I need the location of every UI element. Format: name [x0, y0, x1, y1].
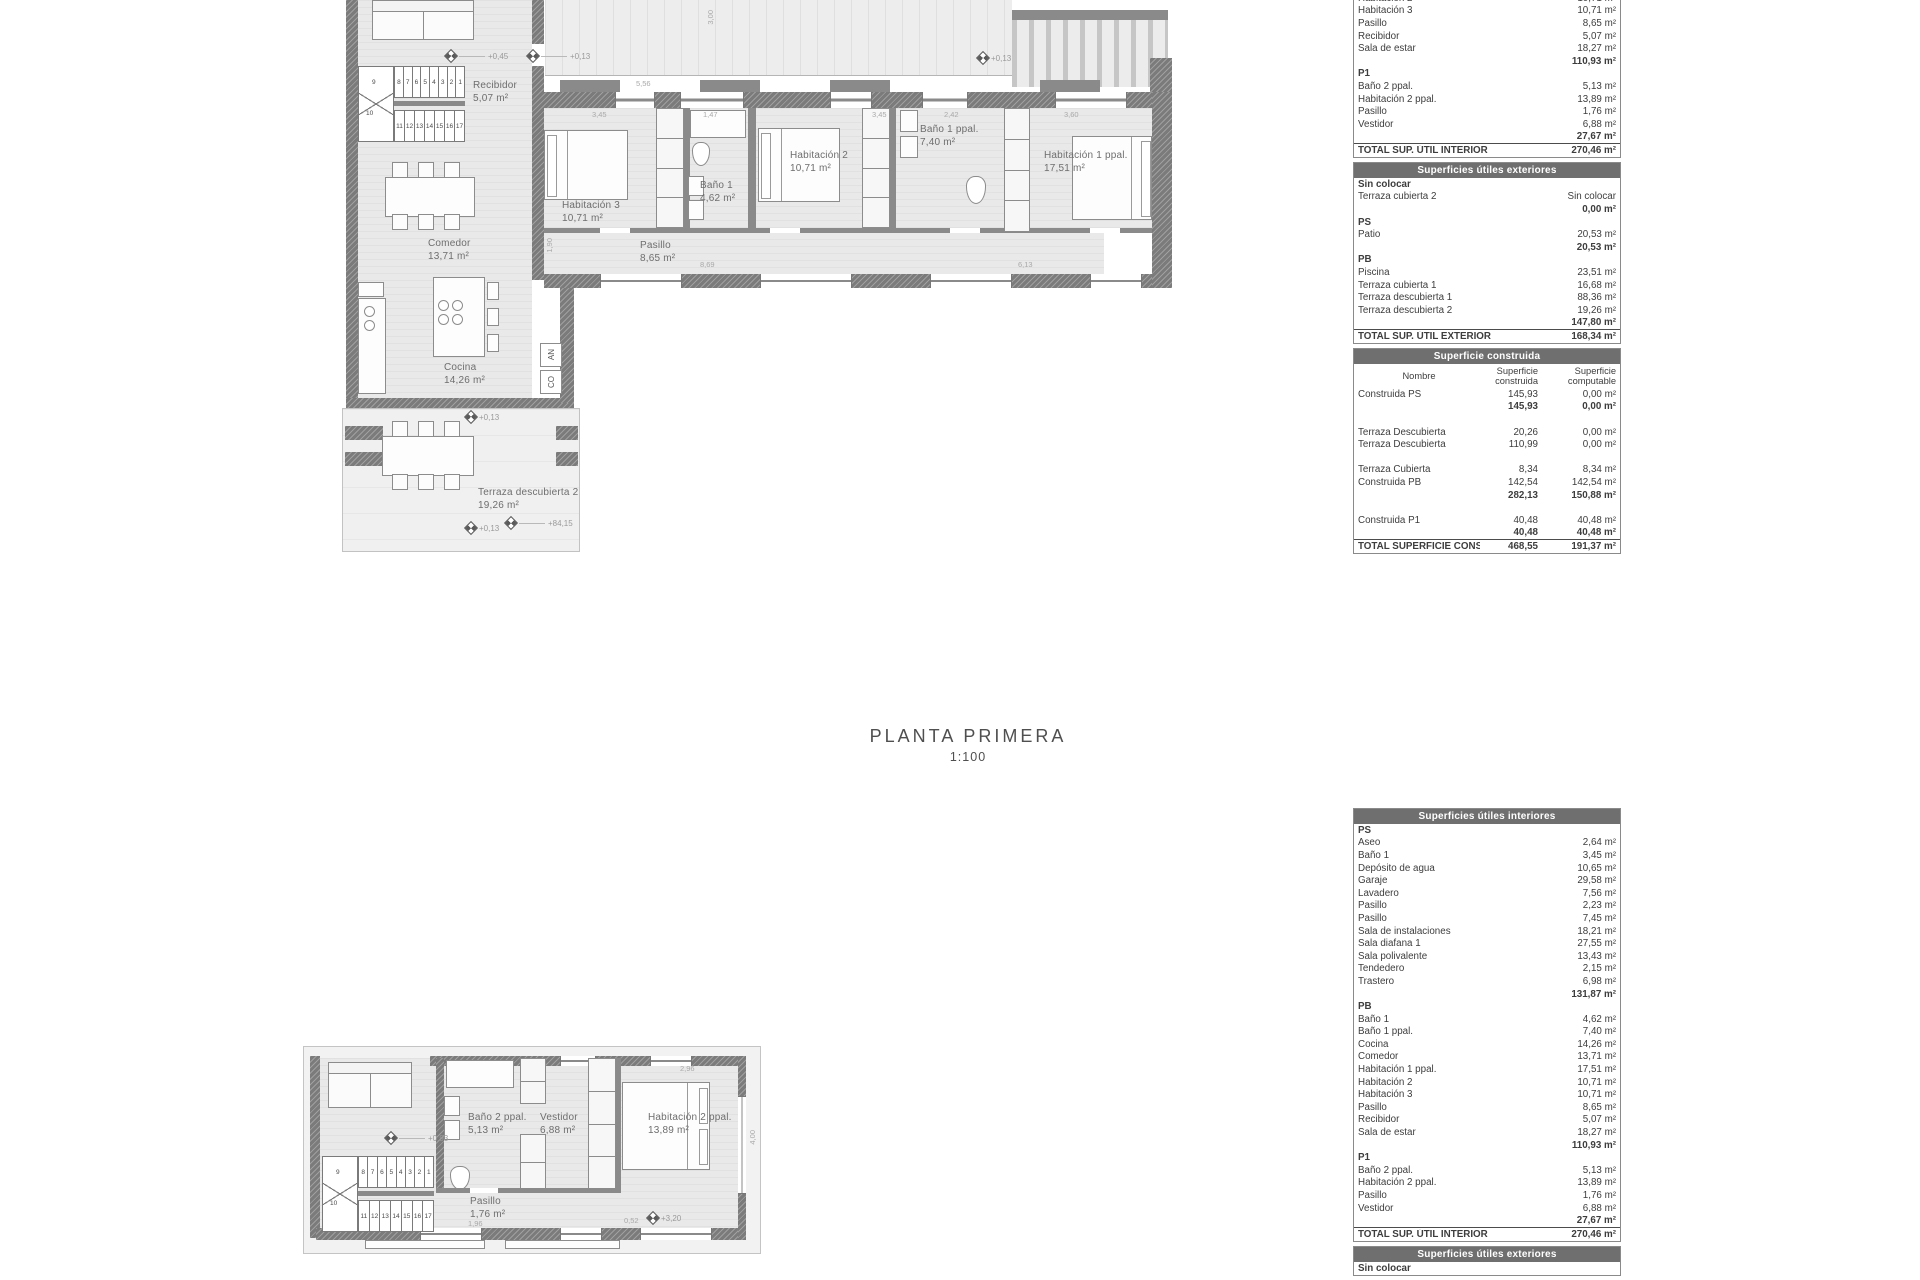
table-row: 282,13150,88 m²	[1354, 489, 1620, 502]
table-row: Habitación 2 ppal.13,89 m²	[1354, 93, 1620, 106]
table-cell: 27,67 m²	[1577, 1215, 1616, 1226]
dimension: 6,13	[1018, 260, 1033, 269]
table-cell: 5,13 m²	[1583, 81, 1616, 92]
table-row: P1	[1354, 1151, 1620, 1164]
stair-step-number: 17	[423, 1201, 433, 1231]
table-cell: 40,48	[1480, 515, 1538, 526]
wardrobe	[862, 108, 890, 228]
stair-step-number: 7	[368, 1157, 377, 1187]
table-cell: 10,65 m²	[1577, 863, 1616, 874]
table-cell: 5,13 m²	[1583, 1165, 1616, 1176]
table-cell: 131,87 m²	[1571, 989, 1616, 1000]
wall	[1150, 58, 1172, 92]
table-cell: 8,65 m²	[1583, 1102, 1616, 1113]
bed	[1072, 136, 1152, 220]
level-marker: +0,13	[466, 412, 499, 422]
table-superficies-utiles-exteriores-bottom: Superficies útiles exterioresSin colocar	[1353, 1246, 1621, 1276]
table-cell: 20,26	[1480, 427, 1538, 438]
table-cell: Sin colocar	[1568, 191, 1616, 202]
sofa-back	[329, 1063, 411, 1074]
window-sill	[830, 80, 890, 92]
table-row: P1	[1354, 68, 1620, 81]
table-cell: 13,89 m²	[1577, 94, 1616, 105]
wall	[890, 108, 896, 228]
table-row: Baño 14,62 m²	[1354, 1013, 1620, 1026]
wardrobe	[656, 108, 684, 228]
stair-step-number: 9	[336, 1169, 340, 1176]
dimension: 2,96	[680, 1064, 695, 1073]
window	[760, 274, 852, 288]
chair	[444, 421, 460, 437]
bed-sheet-line	[1131, 137, 1132, 219]
stair-landing	[358, 66, 394, 142]
table-row: Depósito de agua10,65 m²	[1354, 862, 1620, 875]
table-row: TOTAL SUP. ÚTIL EXTERIOR168,34 m²	[1354, 329, 1620, 343]
table-cell: Habitación 2 ppal.	[1358, 94, 1577, 105]
wall	[1152, 92, 1172, 288]
sink-bowl	[364, 320, 375, 331]
table-cell: Trastero	[1358, 976, 1583, 987]
table-row: 0,00 m²	[1354, 203, 1620, 216]
table-cell: Terraza descubierta 2	[1358, 305, 1577, 316]
table-cell: 29,58 m²	[1577, 875, 1616, 886]
table-row: Terraza Descubierta20,260,00 m²	[1354, 426, 1620, 439]
table-row: Recibidor5,07 m²	[1354, 30, 1620, 43]
room-label-hab2ppal: Habitación 2 ppal.13,89 m²	[648, 1112, 732, 1137]
kitchen-appliance	[358, 282, 384, 297]
bed-sheet-line	[781, 129, 782, 201]
table-cell: Sala de estar	[1358, 1127, 1577, 1138]
level-marker: +0,93	[386, 1133, 448, 1143]
table-cell: 10,71 m²	[1577, 0, 1616, 4]
wardrobe	[588, 1058, 616, 1190]
table-row: Terraza Cubierta8,348,34 m²	[1354, 464, 1620, 477]
table-cell: 0,00 m²	[1538, 427, 1616, 438]
table-cell: 110,99	[1480, 439, 1538, 450]
table-header: Superficies útiles exteriores	[1354, 163, 1620, 178]
bed	[544, 130, 628, 200]
shower	[690, 110, 746, 138]
room-label-terraza2: Terraza descubierta 219,26 m²	[478, 487, 578, 512]
table-row: Cocina14,26 m²	[1354, 1038, 1620, 1051]
outdoor-table	[382, 436, 474, 476]
level-marker: +0,45	[446, 51, 508, 61]
benchmark-icon	[464, 521, 478, 535]
table-cell: PB	[1358, 254, 1616, 265]
table-cell: Habitación 2	[1358, 1077, 1577, 1088]
table-row: Habitación 310,71 m²	[1354, 1088, 1620, 1101]
table-row: TOTAL SUP. ÚTIL INTERIOR270,46 m²	[1354, 143, 1620, 157]
table-cell: 13,71 m²	[1577, 1051, 1616, 1062]
stair-step-number: 3	[406, 1157, 415, 1187]
table-row: Vestidor6,88 m²	[1354, 118, 1620, 131]
table-cell: 7,45 m²	[1583, 913, 1616, 924]
room-label-vestidor: Vestidor6,88 m²	[540, 1112, 578, 1137]
table-cell: Depósito de agua	[1358, 863, 1577, 874]
table-row	[1354, 413, 1620, 426]
dimension: 2,42	[944, 110, 959, 119]
table-cell: 10,71 m²	[1577, 1077, 1616, 1088]
stair-step-number: 10	[366, 110, 373, 117]
level-marker: +0,13	[528, 51, 590, 61]
table-cell: Habitación 2	[1358, 0, 1577, 4]
stair-step-number: 15	[435, 111, 445, 141]
wall	[346, 0, 358, 403]
room-label-pasillo-p1: Pasillo1,76 m²	[470, 1196, 505, 1221]
floor-plan-p1: 87654321 11121314151617 9 10 Baño 2 ppal…	[0, 1000, 820, 1280]
table-cell: 270,46 m²	[1571, 145, 1616, 156]
table-cell: Vestidor	[1358, 1203, 1583, 1214]
window	[600, 274, 682, 288]
sink	[900, 136, 918, 158]
table-cell: Construida P1	[1358, 515, 1480, 526]
stair-step-number: 6	[378, 1157, 387, 1187]
table-cell: 7,56 m²	[1583, 888, 1616, 899]
table-row: 27,67 m²	[1354, 1214, 1620, 1227]
table-cell: 18,27 m²	[1577, 1127, 1616, 1138]
table-cell: PS	[1358, 825, 1616, 836]
table-cell: Recibidor	[1358, 31, 1583, 42]
table-row: Construida P140,4840,48 m²	[1354, 514, 1620, 527]
table-row: 147,80 m²	[1354, 317, 1620, 330]
table-cell: 147,80 m²	[1571, 317, 1616, 328]
table-cell: Sala polivalente	[1358, 951, 1577, 962]
table-cell: 142,54 m²	[1538, 477, 1616, 488]
floor-plan-pb: 87654321 11121314151617 9 10 AN CO	[0, 0, 1200, 560]
table-cell: Baño 1	[1358, 1014, 1583, 1025]
dimension: 8,69	[700, 260, 715, 269]
table-cell: 16,68 m²	[1577, 280, 1616, 291]
staircase-p1: 87654321 11121314151617 9 10	[322, 1156, 434, 1232]
stair-step-number: 12	[370, 1201, 381, 1231]
stair-step-number: 16	[413, 1201, 424, 1231]
benchmark-icon	[504, 516, 518, 530]
chair	[444, 474, 460, 490]
table-row: Pasillo8,65 m²	[1354, 17, 1620, 30]
table-row: PS	[1354, 824, 1620, 837]
window	[930, 274, 1012, 288]
table-superficies-utiles-exteriores-top: Superficies útiles exterioresSin colocar…	[1353, 162, 1621, 344]
table-cell: 168,34 m²	[1571, 331, 1616, 342]
table-cell: 8,34 m²	[1538, 464, 1616, 475]
table-row: Habitación 2 ppal.13,89 m²	[1354, 1177, 1620, 1190]
benchmark-icon	[444, 49, 458, 63]
level-marker: +0,13	[978, 53, 1011, 63]
table-cell: 8,65 m²	[1583, 18, 1616, 29]
dimension: 0,52	[624, 1216, 639, 1225]
table-cell: 142,54	[1480, 477, 1538, 488]
table-cell: Construida PB	[1358, 477, 1480, 488]
room-label-pasillo: Pasillo8,65 m²	[640, 240, 675, 265]
stair-flight-upper: 87654321	[394, 66, 465, 98]
table-cell: Nombre	[1358, 371, 1480, 381]
table-cell: Pasillo	[1358, 18, 1583, 29]
table-cell: 110,93 m²	[1572, 1140, 1616, 1151]
benchmark-icon	[976, 51, 990, 65]
stair-step-number: 8	[359, 1157, 368, 1187]
table-cell: 2,15 m²	[1583, 963, 1616, 974]
table-cell: Vestidor	[1358, 119, 1583, 130]
table-cell: 20,53 m²	[1577, 229, 1616, 240]
table-cell: 145,93	[1480, 389, 1538, 400]
table-cell: 7,40 m²	[1583, 1026, 1616, 1037]
door-opening	[470, 1188, 498, 1193]
stair-step-number: 2	[415, 1157, 424, 1187]
wall	[544, 228, 1154, 233]
table-row: TOTAL SUPERFICIE CONSTRUIDA:468,55191,37…	[1354, 539, 1620, 553]
chair	[392, 474, 408, 490]
table-row: 27,67 m²	[1354, 131, 1620, 144]
table-cell: TOTAL SUP. ÚTIL INTERIOR	[1358, 145, 1571, 156]
drawing-scale: 1:100	[818, 750, 1118, 764]
stool	[487, 282, 499, 300]
hob-burner	[438, 300, 449, 311]
stair-flight-lower: 11121314151617	[394, 110, 465, 142]
benchmark-icon	[646, 1211, 660, 1225]
window	[560, 1228, 602, 1240]
table-cell: 1,76 m²	[1583, 106, 1616, 117]
table-row: Sala de estar18,27 m²	[1354, 1126, 1620, 1139]
table-cell: Patio	[1358, 229, 1577, 240]
table-cell: 4,62 m²	[1583, 1014, 1616, 1025]
level-marker: +3,20	[648, 1213, 681, 1223]
room-label-comedor: Comedor13,71 m²	[428, 238, 471, 263]
stair-step-number: 14	[425, 111, 435, 141]
table-row: Baño 2 ppal.5,13 m²	[1354, 80, 1620, 93]
dimension: 3,45	[592, 110, 607, 119]
table-cell: Piscina	[1358, 267, 1577, 278]
annotation-box-an: AN	[540, 343, 562, 367]
wardrobe	[520, 1134, 546, 1190]
table-cell: 14,26 m²	[1577, 1039, 1616, 1050]
wall	[556, 452, 578, 466]
stair-step-number: 9	[372, 79, 376, 86]
table-cell: 20,53 m²	[1577, 242, 1616, 253]
stair-step-number: 11	[359, 1201, 370, 1231]
table-cell: Comedor	[1358, 1051, 1577, 1062]
window	[680, 92, 744, 108]
table-row	[1354, 451, 1620, 464]
sofa-seats	[329, 1074, 411, 1107]
stool	[487, 308, 499, 326]
table-row: Patio20,53 m²	[1354, 228, 1620, 241]
leader-line	[519, 523, 545, 524]
table-cell: Aseo	[1358, 837, 1583, 848]
stair-flight-lower: 11121314151617	[358, 1200, 434, 1232]
table-row: TOTAL SUP. ÚTIL INTERIOR270,46 m²	[1354, 1227, 1620, 1241]
chair	[392, 214, 408, 230]
table-cell: Sala diafana 1	[1358, 938, 1577, 949]
window	[830, 92, 872, 108]
window-sill	[365, 1240, 485, 1249]
table-cell: 27,55 m²	[1577, 938, 1616, 949]
chair	[418, 421, 434, 437]
window-sill	[1040, 80, 1100, 92]
wall	[345, 452, 383, 466]
table-row: Sin colocar	[1354, 178, 1620, 191]
table-row: 20,53 m²	[1354, 241, 1620, 254]
pillow	[1141, 141, 1151, 217]
table-cell: Pasillo	[1358, 1190, 1583, 1201]
table-row: 110,93 m²	[1354, 1139, 1620, 1152]
stair-step-number: 4	[397, 1157, 406, 1187]
pillow	[761, 133, 771, 199]
sofa	[328, 1062, 412, 1108]
dimension: 1,96	[468, 1219, 483, 1228]
sink	[444, 1096, 460, 1116]
table-row: Terraza Descubierta110,990,00 m²	[1354, 438, 1620, 451]
table-cell: Terraza Descubierta	[1358, 427, 1480, 438]
table-cell: 17,51 m²	[1577, 1064, 1616, 1075]
table-cell: 0,00 m²	[1582, 204, 1616, 215]
table-cell: 2,23 m²	[1583, 900, 1616, 911]
table-cell: P1	[1358, 1152, 1616, 1163]
table-cell: TOTAL SUPERFICIE CONSTRUIDA:	[1358, 541, 1480, 552]
chair	[418, 162, 434, 178]
table-cell: 88,36 m²	[1577, 292, 1616, 303]
leader-line	[459, 56, 485, 57]
table-row: Terraza descubierta 188,36 m²	[1354, 291, 1620, 304]
room-label-hab1ppal: Habitación 1 ppal.17,51 m²	[1044, 150, 1128, 175]
sofa-seats	[373, 12, 473, 39]
benchmark-icon	[526, 49, 540, 63]
chair	[418, 214, 434, 230]
table-row: 145,930,00 m²	[1354, 401, 1620, 414]
chair	[418, 474, 434, 490]
table-cell: 0,00 m²	[1538, 401, 1616, 412]
annotation-text: AN	[547, 349, 556, 360]
window	[1090, 274, 1142, 288]
dining-table	[385, 177, 475, 217]
table-cell: 5,07 m²	[1583, 1114, 1616, 1125]
stair-step-number: 13	[380, 1201, 391, 1231]
room-label-bano2ppal: Baño 2 ppal.5,13 m²	[468, 1112, 527, 1137]
wall	[560, 285, 574, 403]
stair-step-number: 3	[439, 67, 448, 97]
table-cell: 0,00 m²	[1538, 439, 1616, 450]
window	[640, 1228, 712, 1240]
table-cell: Terraza Cubierta	[1358, 464, 1480, 475]
table-cell: 6,88 m²	[1583, 1203, 1616, 1214]
door-opening	[770, 228, 800, 233]
table-cell: Habitación 3	[1358, 5, 1577, 16]
table-row: 131,87 m²	[1354, 988, 1620, 1001]
table-cell: 27,67 m²	[1577, 131, 1616, 142]
table-row: 40,4840,48 m²	[1354, 527, 1620, 540]
table-row: Sala diafana 127,55 m²	[1354, 937, 1620, 950]
table-row: Baño 2 ppal.5,13 m²	[1354, 1164, 1620, 1177]
table-cell: 19,26 m²	[1577, 305, 1616, 316]
hob-burner	[452, 314, 463, 325]
table-cell: Recibidor	[1358, 1114, 1583, 1125]
table-cell: PS	[1358, 217, 1616, 228]
table-cell: 13,43 m²	[1577, 951, 1616, 962]
table-cell: 282,13	[1480, 490, 1538, 501]
stair-step-number: 5	[387, 1157, 396, 1187]
table-row	[1354, 501, 1620, 514]
leader-line	[399, 1138, 425, 1139]
wardrobe	[520, 1058, 546, 1104]
table-cell: P1	[1358, 68, 1616, 79]
table-cell: 40,48 m²	[1538, 515, 1616, 526]
hob-burner	[452, 300, 463, 311]
dimension: 3,60	[1064, 110, 1079, 119]
staircase-pb: 87654321 11121314151617 9 10	[358, 66, 465, 142]
window	[922, 92, 968, 108]
table-row: Sala de instalaciones18,21 m²	[1354, 925, 1620, 938]
table-row: Pasillo8,65 m²	[1354, 1101, 1620, 1114]
table-row: Tendedero2,15 m²	[1354, 963, 1620, 976]
stair-step-number: 1	[456, 67, 464, 97]
table-header: Superficies útiles exteriores	[1354, 1247, 1620, 1262]
door-opening	[600, 228, 630, 233]
chair	[444, 214, 460, 230]
bed-sheet-line	[567, 131, 568, 199]
dimension: 3,00	[706, 10, 715, 25]
stair-step-number: 2	[448, 67, 457, 97]
wall	[532, 0, 544, 44]
stair-landing	[322, 1156, 358, 1232]
table-row: Terraza cubierta 2Sin colocar	[1354, 191, 1620, 204]
door-opening	[1090, 228, 1120, 233]
chair	[444, 162, 460, 178]
stair-step-number: 8	[395, 67, 404, 97]
stair-step-number: 12	[405, 111, 415, 141]
door-opening	[950, 228, 980, 233]
table-superficies-utiles-interiores-top: Habitación 210,71 m²Habitación 310,71 m²…	[1353, 0, 1621, 158]
dimension: 3,45	[872, 110, 887, 119]
table-cell: 110,93 m²	[1572, 56, 1616, 67]
table-cell: 40,48	[1480, 527, 1538, 538]
benchmark-icon	[464, 410, 478, 424]
table-cell: 270,46 m²	[1571, 1229, 1616, 1240]
room-label-bano1ppal: Baño 1 ppal.7,40 m²	[920, 124, 979, 149]
table-column-header: NombreSuperficie construidaSuperficie co…	[1354, 364, 1620, 388]
table-cell: Terraza Descubierta	[1358, 439, 1480, 450]
wall	[436, 1058, 444, 1192]
hob-burner	[438, 314, 449, 325]
table-row: Habitación 310,71 m²	[1354, 5, 1620, 18]
table-cell: Habitación 3	[1358, 1089, 1577, 1100]
annotation-text: CO	[547, 376, 556, 388]
table-cell: Garaje	[1358, 875, 1577, 886]
table-row: Aseo2,64 m²	[1354, 837, 1620, 850]
table-cell: 150,88 m²	[1538, 490, 1616, 501]
table-row: Habitación 210,71 m²	[1354, 1076, 1620, 1089]
wall	[748, 108, 756, 228]
table-cell: Pasillo	[1358, 900, 1583, 911]
table-cell: Terraza cubierta 2	[1358, 191, 1568, 202]
table-row: Piscina23,51 m²	[1354, 266, 1620, 279]
stair-step-number: 6	[413, 67, 422, 97]
stair-rail	[358, 1191, 434, 1196]
table-row: Vestidor6,88 m²	[1354, 1202, 1620, 1215]
stair-step-number: 14	[391, 1201, 402, 1231]
table-row: Sin colocar	[1354, 1262, 1620, 1275]
table-cell: 6,98 m²	[1583, 976, 1616, 987]
stair-step-number: 7	[404, 67, 413, 97]
table-row: Comedor13,71 m²	[1354, 1051, 1620, 1064]
benchmark-icon	[384, 1131, 398, 1145]
table-cell: Terraza cubierta 1	[1358, 280, 1577, 291]
sofa-back	[373, 1, 473, 12]
window-sill	[700, 80, 760, 92]
table-row: Lavadero7,56 m²	[1354, 887, 1620, 900]
sink-bowl	[364, 306, 375, 317]
table-cell: 8,34	[1480, 464, 1538, 475]
window	[615, 92, 655, 108]
dimension: 1,47	[703, 110, 718, 119]
